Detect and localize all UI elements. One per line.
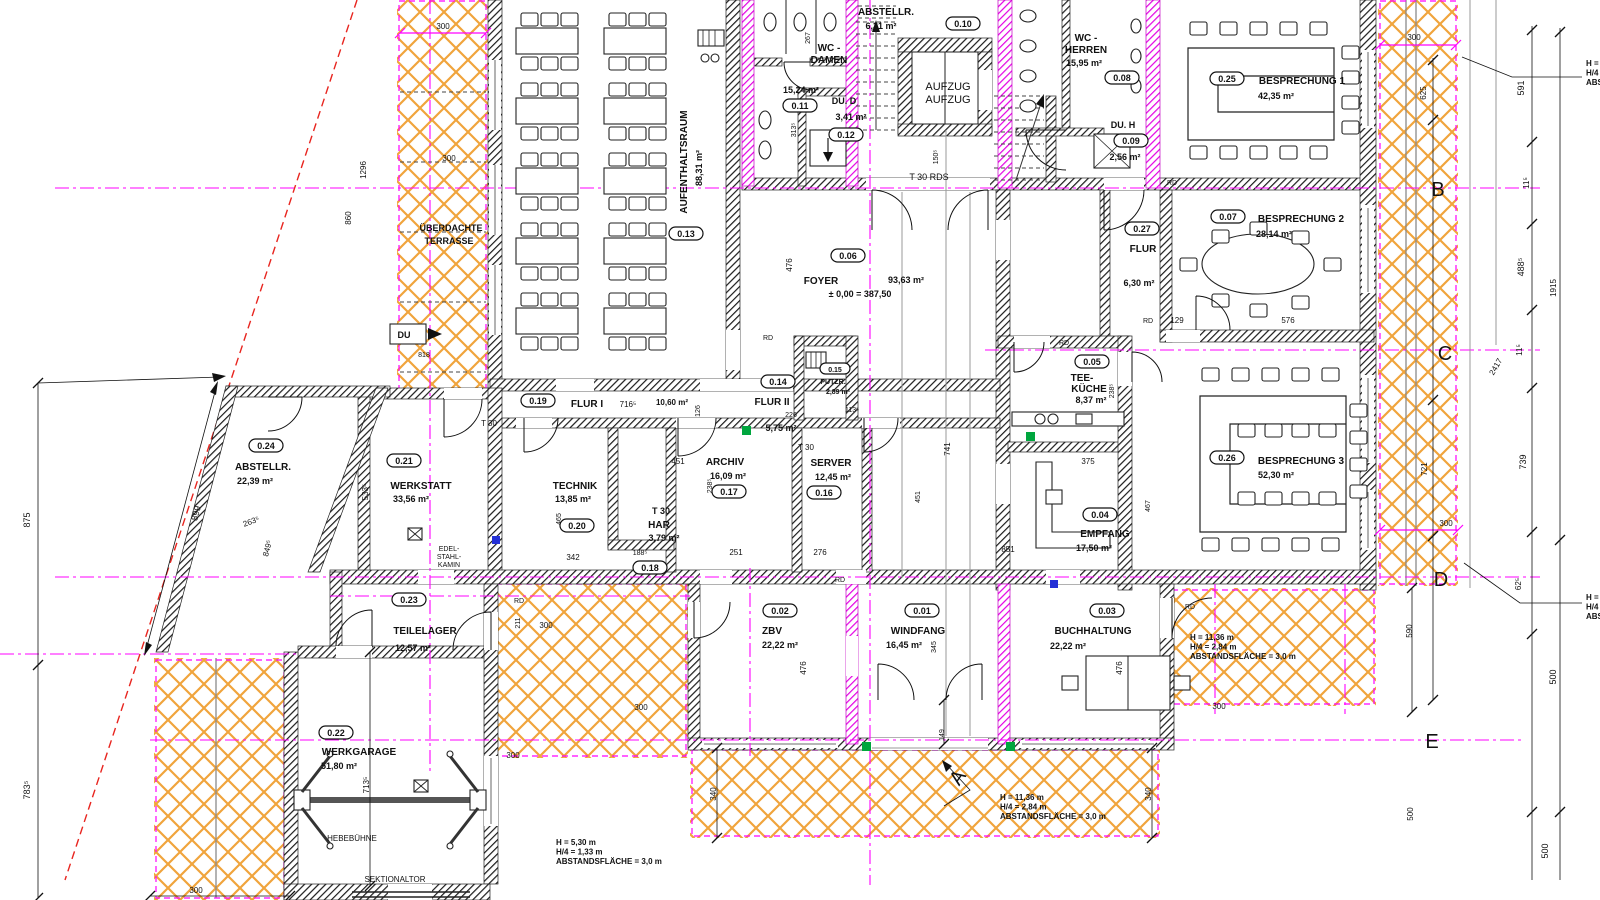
svg-text:17,50 m²: 17,50 m² — [1076, 543, 1112, 553]
dim-label: 251 — [729, 548, 743, 557]
chair — [1322, 368, 1339, 381]
note-line: H = 11,36 m — [1190, 633, 1234, 642]
svg-text:BESPRECHUNG 3: BESPRECHUNG 3 — [1258, 456, 1345, 467]
svg-text:22,22 m²: 22,22 m² — [1050, 641, 1086, 651]
table — [604, 98, 666, 124]
svg-text:6,31 m²: 6,31 m² — [865, 21, 896, 31]
svg-text:ABSTELLR.: ABSTELLR. — [235, 462, 291, 473]
svg-text:ARCHIV: ARCHIV — [706, 457, 745, 468]
chair — [1262, 538, 1279, 551]
chair — [629, 127, 646, 140]
chair — [541, 267, 558, 280]
svg-text:93,63 m²: 93,63 m² — [888, 275, 924, 285]
svg-text:BESPRECHUNG 2: BESPRECHUNG 2 — [1258, 214, 1345, 225]
svg-text:FOYER: FOYER — [804, 276, 839, 287]
note-line: H/4 = 2,84 m — [1000, 803, 1046, 812]
chair — [649, 223, 666, 236]
dim-label: 860 — [344, 211, 353, 225]
table — [516, 98, 578, 124]
dim-label: 488⁵ — [1516, 257, 1526, 276]
dim-label: 783⁵ — [22, 780, 32, 799]
note-line: H/4 = 1,33 m — [556, 848, 602, 857]
dim-label: RD — [514, 598, 524, 605]
svg-text:WC -: WC - — [818, 43, 841, 54]
dim-label: 625 — [1419, 86, 1428, 100]
dim-label: 721 — [1420, 462, 1429, 476]
table — [604, 168, 666, 194]
svg-text:52,30 m²: 52,30 m² — [1258, 470, 1294, 480]
chair — [649, 267, 666, 280]
svg-text:16,45 m²: 16,45 m² — [886, 640, 922, 650]
dim-label: 10,60 m² — [656, 398, 688, 407]
dim-label: 267 — [805, 32, 812, 44]
chair — [1292, 424, 1309, 437]
note-line: ABS — [1586, 78, 1600, 87]
chair — [1212, 294, 1229, 307]
svg-text:22,39 m²: 22,39 m² — [237, 476, 273, 486]
svg-text:15,95 m²: 15,95 m² — [1066, 58, 1102, 68]
chair — [1310, 146, 1327, 159]
chair — [649, 153, 666, 166]
chair — [629, 293, 646, 306]
svg-text:0.25: 0.25 — [1218, 74, 1236, 84]
chair — [1319, 492, 1336, 505]
chair — [1180, 258, 1197, 271]
svg-text:3,79 m²: 3,79 m² — [648, 533, 679, 543]
dim-label: 467 — [1145, 500, 1152, 512]
chair — [1324, 258, 1341, 271]
dim-label: 300 — [539, 621, 553, 630]
chair — [649, 83, 666, 96]
dim-label: 300 — [442, 154, 456, 163]
svg-text:3,41 m²: 3,41 m² — [835, 112, 866, 122]
chair — [609, 267, 626, 280]
svg-text:ABSTELLR.: ABSTELLR. — [858, 7, 914, 18]
chair — [1350, 458, 1367, 471]
chair — [561, 293, 578, 306]
svg-text:BESPRECHUNG 1: BESPRECHUNG 1 — [1259, 76, 1346, 87]
note-line: H = 11,36 m — [1000, 793, 1044, 802]
chair — [609, 127, 626, 140]
svg-text:EMPFANG: EMPFANG — [1080, 529, 1130, 540]
svg-text:0.07: 0.07 — [1219, 212, 1237, 222]
dim-label: 1915 — [1549, 279, 1558, 297]
chair — [649, 197, 666, 210]
svg-text:FLUR: FLUR — [1130, 244, 1157, 255]
chair — [541, 197, 558, 210]
chair — [561, 83, 578, 96]
svg-text:0.13: 0.13 — [677, 229, 695, 239]
chair — [541, 153, 558, 166]
table — [604, 308, 666, 334]
dim-label: 500 — [1548, 669, 1558, 684]
chair — [541, 57, 558, 70]
chair — [1262, 368, 1279, 381]
dim-label: 300 — [189, 886, 203, 895]
chair — [1292, 296, 1309, 309]
svg-text:TECHNIK: TECHNIK — [553, 481, 598, 492]
chair — [521, 223, 538, 236]
dim-label: 875 — [22, 512, 32, 527]
chair — [521, 153, 538, 166]
dim-label: RD — [1143, 318, 1153, 325]
dim-label: 590 — [1405, 624, 1414, 638]
table — [516, 28, 578, 54]
dim-label: 476 — [785, 258, 794, 272]
chair — [1342, 121, 1359, 134]
svg-text:33,56 m²: 33,56 m² — [393, 494, 429, 504]
svg-text:8,37 m²: 8,37 m² — [1075, 395, 1106, 405]
dim-label: 226 — [785, 412, 797, 419]
chair — [609, 13, 626, 26]
chair — [1350, 431, 1367, 444]
floor-plan: 0.01WINDFANG16,45 m² 0.02ZBV22,22 m² 0.0… — [0, 0, 1600, 900]
chair — [1319, 424, 1336, 437]
svg-text:0.11: 0.11 — [791, 101, 808, 111]
table — [516, 308, 578, 334]
chair — [561, 13, 578, 26]
svg-text:0.20: 0.20 — [568, 521, 586, 531]
svg-text:FLUR I: FLUR I — [571, 399, 603, 410]
dim-label: 113⁵ — [845, 407, 859, 414]
svg-text:WERKSTATT: WERKSTATT — [390, 481, 451, 492]
note-line: ABS — [1586, 612, 1600, 621]
chair — [1292, 492, 1309, 505]
chair — [1292, 231, 1309, 244]
chair — [1232, 538, 1249, 551]
chair — [521, 127, 538, 140]
svg-text:0.26: 0.26 — [1218, 453, 1236, 463]
table — [604, 238, 666, 264]
chair — [1280, 22, 1297, 35]
chair — [541, 293, 558, 306]
chair — [1350, 485, 1367, 498]
svg-text:22,22 m²: 22,22 m² — [762, 640, 798, 650]
svg-text:0.14: 0.14 — [769, 377, 787, 387]
svg-text:0.09: 0.09 — [1122, 136, 1140, 146]
chair — [541, 83, 558, 96]
svg-text:6,30 m²: 6,30 m² — [1123, 278, 1154, 288]
note-line: H = — [1586, 593, 1599, 602]
dim-label: 11⁵ — [1522, 177, 1531, 189]
dim-label: HEBEBÜHNE — [327, 834, 377, 843]
dim-label: T 30 RDS — [909, 172, 948, 182]
dim-label: 211 — [515, 617, 522, 628]
svg-text:0.24: 0.24 — [257, 441, 275, 451]
chair — [561, 127, 578, 140]
chair — [1250, 304, 1267, 317]
chair — [521, 293, 538, 306]
chair — [649, 337, 666, 350]
chair — [541, 13, 558, 26]
chair — [561, 57, 578, 70]
dim-label: 11⁵ — [1515, 344, 1524, 356]
dim-label: 126 — [695, 405, 702, 417]
dim-label: 476 — [1115, 661, 1124, 675]
svg-text:0.08: 0.08 — [1113, 73, 1131, 83]
chair — [1190, 146, 1207, 159]
dim-label: KAMIN — [438, 562, 460, 569]
dim-label: RD — [835, 577, 845, 584]
dim-label: 340 — [709, 787, 718, 801]
note-line: H/4 = 2,84 m — [1190, 643, 1236, 652]
svg-text:FLUR II: FLUR II — [755, 397, 790, 408]
svg-text:0.10: 0.10 — [954, 19, 972, 29]
note-line: H = — [1586, 59, 1599, 68]
svg-text:SERVER: SERVER — [811, 458, 853, 469]
dim-label: 851 — [1001, 545, 1015, 554]
chair — [629, 57, 646, 70]
svg-text:ÜBERDACHTE: ÜBERDACHTE — [420, 223, 483, 233]
svg-text:HAR: HAR — [648, 520, 670, 531]
chair — [629, 337, 646, 350]
chair — [521, 13, 538, 26]
chair — [561, 197, 578, 210]
svg-text:0.18: 0.18 — [641, 563, 659, 573]
svg-text:TEE-: TEE- — [1071, 373, 1094, 384]
dim-label: 300 — [634, 703, 648, 712]
dim-label: 342 — [566, 553, 580, 562]
svg-text:0.01: 0.01 — [913, 606, 931, 616]
chair — [1220, 146, 1237, 159]
dim-label: EDEL- — [439, 546, 460, 553]
dim-label: 741 — [943, 442, 952, 456]
svg-text:0.16: 0.16 — [815, 488, 833, 498]
svg-text:0.27: 0.27 — [1133, 224, 1151, 234]
svg-text:2,89 m²: 2,89 m² — [826, 389, 851, 396]
svg-text:TEILELAGER: TEILELAGER — [393, 626, 457, 637]
svg-text:0.22: 0.22 — [327, 728, 345, 738]
svg-text:WC -: WC - — [1075, 33, 1098, 44]
note-line: ABSTANDSFLÄCHE = 3,0 m — [1190, 652, 1296, 661]
chair — [629, 13, 646, 26]
note-line: ABSTANDSFLÄCHE = 3,0 m — [556, 857, 662, 866]
dim-label: 576 — [1281, 316, 1295, 325]
dim-label: AUFZUG — [925, 94, 970, 106]
svg-text:12,45 m²: 12,45 m² — [815, 472, 851, 482]
dim-label: 238⁵ — [707, 479, 714, 494]
svg-text:88,31 m²: 88,31 m² — [694, 150, 704, 186]
dim-label: STAHL- — [437, 554, 462, 561]
chair — [521, 83, 538, 96]
svg-text:DU. D: DU. D — [832, 96, 857, 106]
chair — [1220, 22, 1237, 35]
dim-label: 300 — [1212, 702, 1226, 711]
dim-label: AUFZUG — [925, 81, 970, 93]
dim-label: 716⁵ — [620, 400, 637, 409]
svg-text:ZBV: ZBV — [762, 626, 782, 637]
dim-label: 188⁵ — [633, 550, 648, 557]
svg-text:28,14 m²: 28,14 m² — [1256, 229, 1292, 239]
grid-letter: C — [1438, 343, 1452, 365]
chair — [1238, 492, 1255, 505]
chair — [521, 197, 538, 210]
svg-text:0.03: 0.03 — [1098, 606, 1116, 616]
svg-text:0.23: 0.23 — [400, 595, 418, 605]
dim-label: 313⁵ — [791, 123, 798, 138]
chair — [629, 197, 646, 210]
svg-text:0.17: 0.17 — [720, 487, 738, 497]
dim-label: 300 — [506, 751, 520, 760]
svg-text:0.02: 0.02 — [771, 606, 789, 616]
chair — [609, 57, 626, 70]
svg-text:BUCHHALTUNG: BUCHHALTUNG — [1054, 626, 1131, 637]
svg-text:2,56 m²: 2,56 m² — [1109, 152, 1140, 162]
svg-text:15,24 m²: 15,24 m² — [783, 85, 819, 95]
svg-text:0.19: 0.19 — [529, 396, 547, 406]
dim-label: SEKTIONALTOR — [364, 875, 425, 884]
chair — [1322, 538, 1339, 551]
dim-label: 591 — [1516, 80, 1526, 95]
chair — [1232, 368, 1249, 381]
chair — [609, 197, 626, 210]
svg-text:51,80 m²: 51,80 m² — [321, 761, 357, 771]
chair — [629, 153, 646, 166]
chair — [609, 337, 626, 350]
dim-label: 276 — [813, 548, 827, 557]
note-line: H/4 — [1586, 603, 1599, 612]
chair — [609, 223, 626, 236]
svg-text:TERRASSE: TERRASSE — [424, 236, 473, 246]
svg-text:0.12: 0.12 — [837, 130, 855, 140]
svg-text:± 0,00 = 387,50: ± 0,00 = 387,50 — [829, 289, 892, 299]
chair — [609, 153, 626, 166]
chair — [1238, 424, 1255, 437]
dim-label: 533⁵ — [361, 484, 370, 501]
chair — [1190, 22, 1207, 35]
svg-text:WINDFANG: WINDFANG — [891, 626, 946, 637]
svg-text:0.05: 0.05 — [1083, 357, 1101, 367]
svg-text:12,57 m²: 12,57 m² — [395, 643, 431, 653]
svg-text:0.06: 0.06 — [839, 251, 857, 261]
chair — [1250, 146, 1267, 159]
chair — [609, 83, 626, 96]
dim-label: 129 — [1170, 316, 1184, 325]
chair — [629, 83, 646, 96]
svg-text:5,75 m²: 5,75 m² — [765, 423, 796, 433]
dim-label: RD — [1167, 180, 1177, 187]
note-line: ABSTANDSFLÄCHE = 3,0 m — [1000, 812, 1106, 821]
svg-text:42,35 m²: 42,35 m² — [1258, 91, 1294, 101]
chair — [521, 337, 538, 350]
chair — [649, 293, 666, 306]
dim-label: 451 — [915, 491, 922, 503]
svg-text:0.21: 0.21 — [395, 456, 413, 466]
svg-text:T 30: T 30 — [652, 506, 670, 516]
svg-text:0.15: 0.15 — [828, 367, 842, 374]
svg-text:HERREN: HERREN — [1065, 45, 1107, 56]
dim-label: 739 — [1518, 454, 1528, 469]
chair — [541, 127, 558, 140]
dim-label: 713⁵ — [362, 777, 371, 794]
grid-letter: E — [1425, 731, 1438, 753]
chair — [1342, 46, 1359, 59]
dim-label: DU — [398, 330, 411, 340]
svg-text:WERKGARAGE: WERKGARAGE — [322, 747, 397, 758]
svg-text:PUTZR.: PUTZR. — [820, 379, 845, 386]
dim-label: 500 — [1406, 807, 1415, 821]
svg-text:13,85 m²: 13,85 m² — [555, 494, 591, 504]
chair — [649, 13, 666, 26]
dim-label: 62⁵ — [1514, 578, 1523, 590]
chair — [1310, 22, 1327, 35]
svg-text:KÜCHE: KÜCHE — [1071, 382, 1107, 395]
chair — [1265, 492, 1282, 505]
chair — [561, 223, 578, 236]
dim-label: RD — [1185, 604, 1195, 611]
chair — [1265, 424, 1282, 437]
svg-text:DU. H: DU. H — [1111, 120, 1136, 130]
dim-label: RD — [1059, 340, 1069, 347]
dim-label: 238⁵ — [1109, 384, 1116, 399]
chair — [521, 267, 538, 280]
dim-label: 375 — [1081, 457, 1095, 466]
table — [516, 168, 578, 194]
chair — [1212, 230, 1229, 243]
chair — [541, 223, 558, 236]
chair — [1250, 22, 1267, 35]
grid-letter: D — [1434, 569, 1448, 591]
chair — [1292, 368, 1309, 381]
dim-label: 300 — [436, 22, 450, 31]
note-line: H/4 — [1586, 69, 1599, 78]
chair — [1280, 146, 1297, 159]
chair — [629, 267, 646, 280]
dim-label: T 30 — [798, 443, 814, 452]
table — [516, 238, 578, 264]
dim-label: 818 — [418, 352, 430, 359]
dim-label: 345 — [931, 641, 938, 653]
dim-label: 150⁵ — [933, 150, 940, 165]
svg-text:16,09 m²: 16,09 m² — [710, 471, 746, 481]
chair — [1350, 404, 1367, 417]
chair — [649, 57, 666, 70]
dim-label: 340 — [1144, 787, 1153, 801]
chair — [629, 223, 646, 236]
dim-label: RD — [763, 335, 773, 342]
chair — [1202, 368, 1219, 381]
note-line: H = 5,30 m — [556, 838, 596, 847]
svg-text:AUFENTHALTSRAUM: AUFENTHALTSRAUM — [679, 110, 690, 213]
chair — [521, 57, 538, 70]
dim-label: 149 — [939, 729, 946, 741]
chair — [541, 337, 558, 350]
chair — [1342, 96, 1359, 109]
chair — [649, 127, 666, 140]
dim-label: 451 — [671, 457, 685, 466]
chair — [561, 267, 578, 280]
chair — [561, 153, 578, 166]
chair — [1292, 538, 1309, 551]
svg-text:0.04: 0.04 — [1091, 510, 1109, 520]
dim-label: 500 — [1540, 843, 1550, 858]
dim-label: 300 — [1439, 519, 1453, 528]
grid-letter: B — [1431, 179, 1444, 201]
dim-label: 465 — [556, 513, 563, 525]
svg-text:DAMEN: DAMEN — [811, 55, 848, 66]
chair — [1202, 538, 1219, 551]
dim-label: 1296 — [359, 161, 368, 179]
dim-label: 476 — [799, 661, 808, 675]
chair — [561, 337, 578, 350]
table — [604, 28, 666, 54]
dim-label: 300 — [1407, 33, 1421, 42]
dim-label: T 30 — [481, 419, 497, 428]
chair — [609, 293, 626, 306]
